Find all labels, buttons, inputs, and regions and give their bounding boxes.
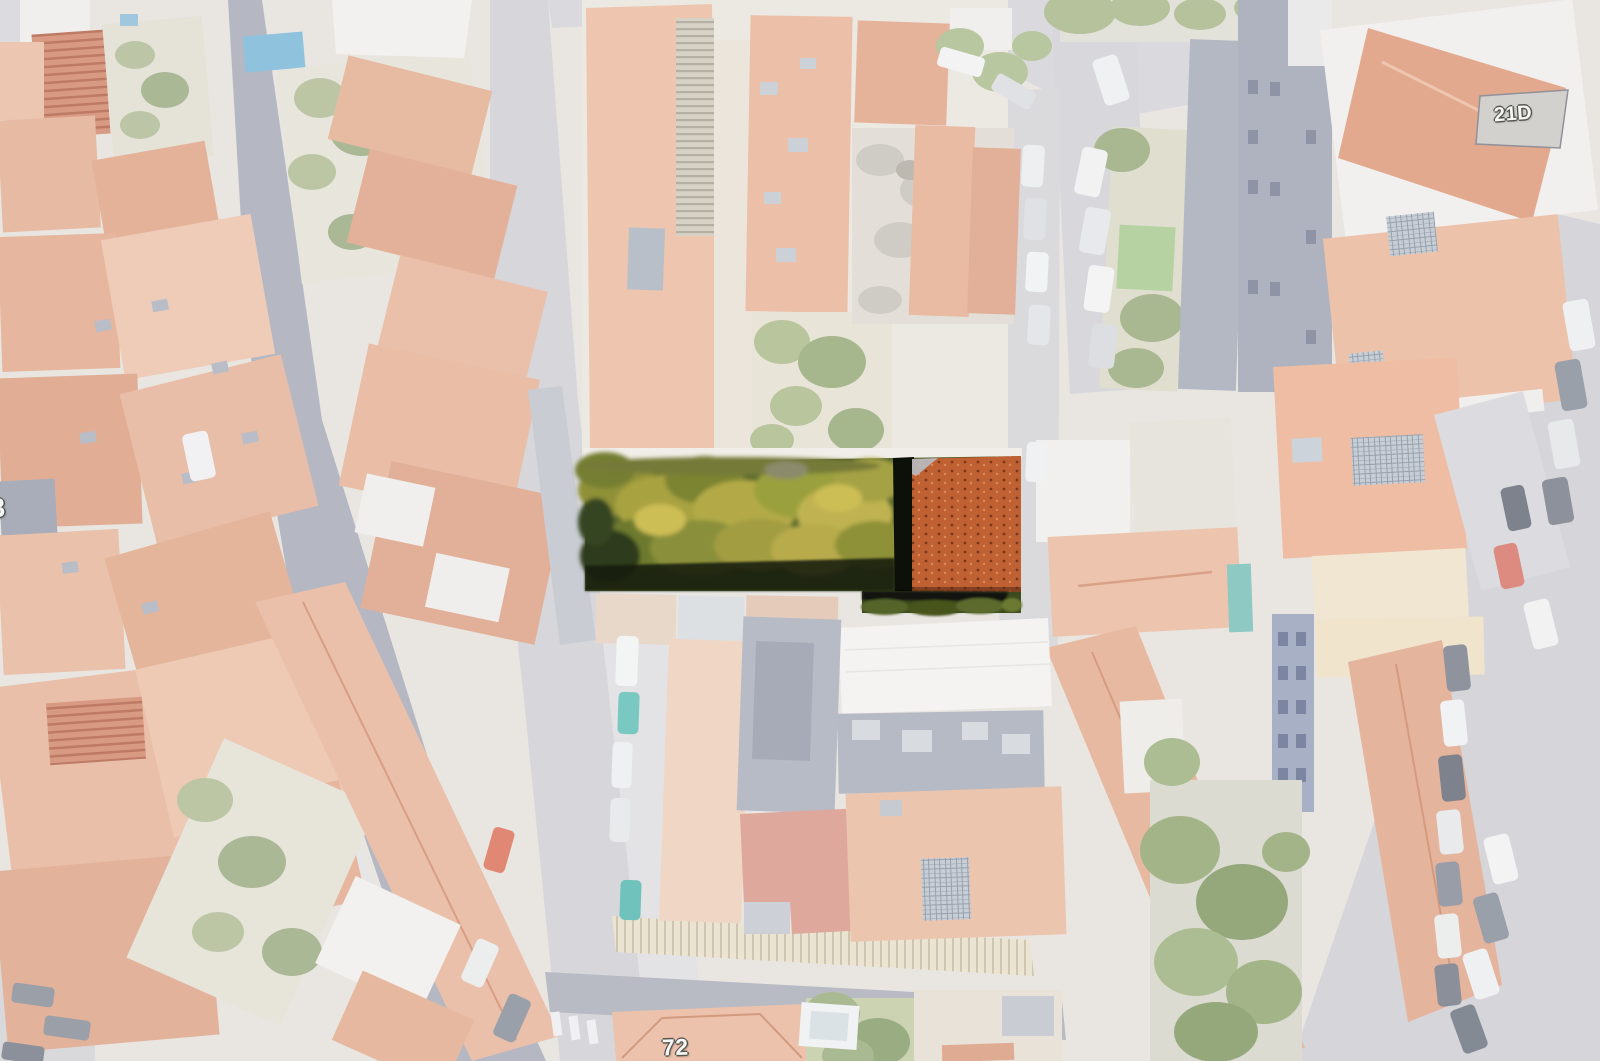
green-lawn [1116, 225, 1175, 292]
parcel-roof [912, 456, 1021, 592]
teal-car [619, 880, 641, 921]
satellite-map-viewport[interactable]: 21D 72 8 [0, 0, 1600, 1061]
teal-car [617, 692, 639, 735]
parcel-divider-wall [893, 457, 914, 613]
solar-panel [1386, 212, 1438, 257]
map-canvas [0, 0, 1600, 1061]
blue-tarp [243, 31, 306, 72]
roof-patch-21d [1476, 90, 1568, 148]
